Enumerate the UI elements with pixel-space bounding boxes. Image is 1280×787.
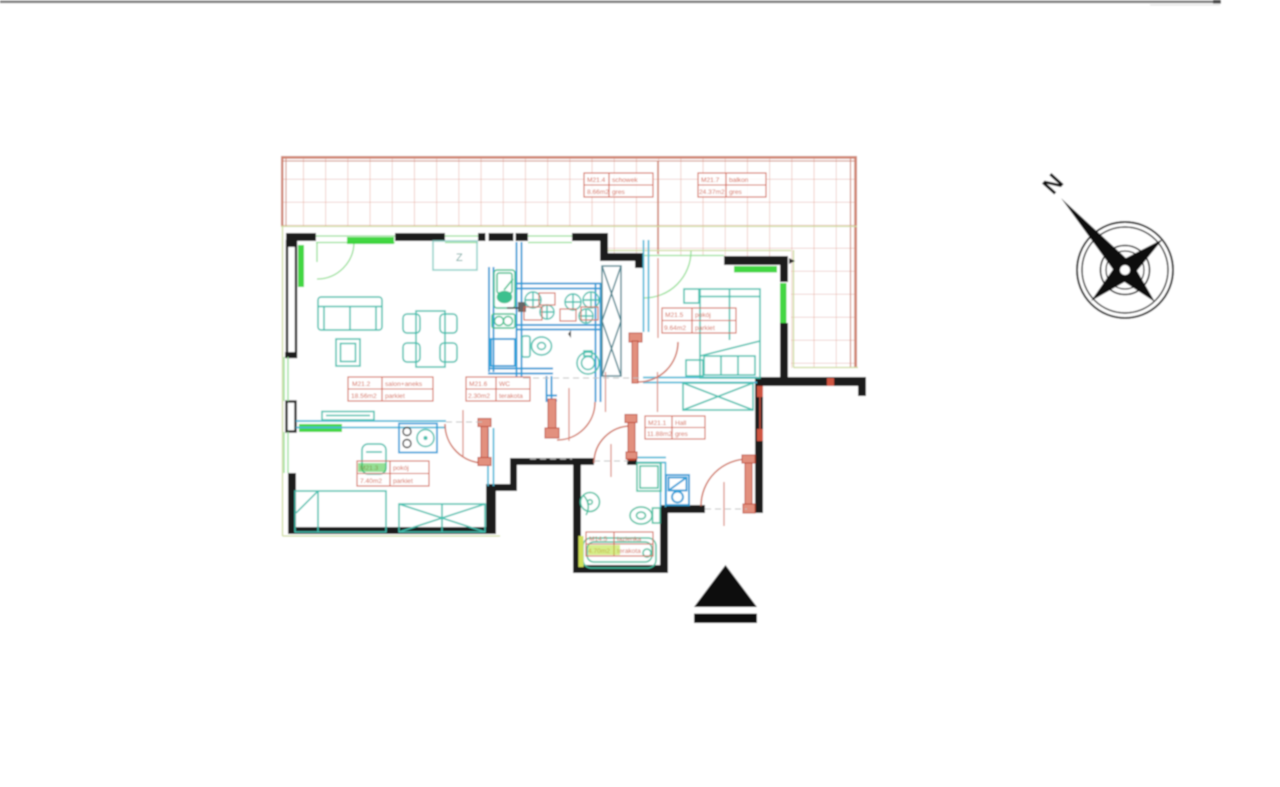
svg-text:M21.6: M21.6 [469,381,488,388]
svg-text:M21.7: M21.7 [701,177,720,184]
svg-text:parkiet: parkiet [385,393,405,400]
svg-text:24.37m2: 24.37m2 [699,189,725,196]
svg-text:M21.1: M21.1 [648,420,667,427]
svg-text:Z: Z [456,252,463,264]
svg-text:schowek: schowek [612,177,638,184]
svg-text:M21.2: M21.2 [352,381,371,388]
svg-text:8.66m2: 8.66m2 [587,189,609,196]
svg-text:terakota: terakota [499,393,523,400]
svg-text:parkiet: parkiet [695,325,715,332]
svg-text:gres: gres [612,189,626,196]
svg-text:11.88m2: 11.88m2 [647,431,673,438]
svg-text:pokój: pokój [393,465,409,472]
svg-text:łazienka: łazienka [617,536,642,543]
svg-text:balkon: balkon [729,177,749,184]
svg-text:7.40m2: 7.40m2 [360,478,382,485]
svg-text:gres: gres [675,431,689,438]
svg-text:M21.5: M21.5 [665,312,684,319]
svg-text:pokój: pokój [695,312,711,319]
svg-text:M21.4: M21.4 [587,177,606,184]
svg-text:M14.5: M14.5 [589,536,608,543]
svg-text:terakota: terakota [617,548,641,555]
svg-text:9.64m2: 9.64m2 [664,325,686,332]
svg-text:gres: gres [729,189,743,196]
svg-text:salon+aneks: salon+aneks [385,381,423,388]
svg-text:2.30m2: 2.30m2 [468,393,490,400]
svg-text:Hall: Hall [675,420,687,427]
svg-text:18.56m2: 18.56m2 [351,393,377,400]
svg-text:parkiet: parkiet [393,478,413,485]
svg-text:WC: WC [499,381,510,388]
